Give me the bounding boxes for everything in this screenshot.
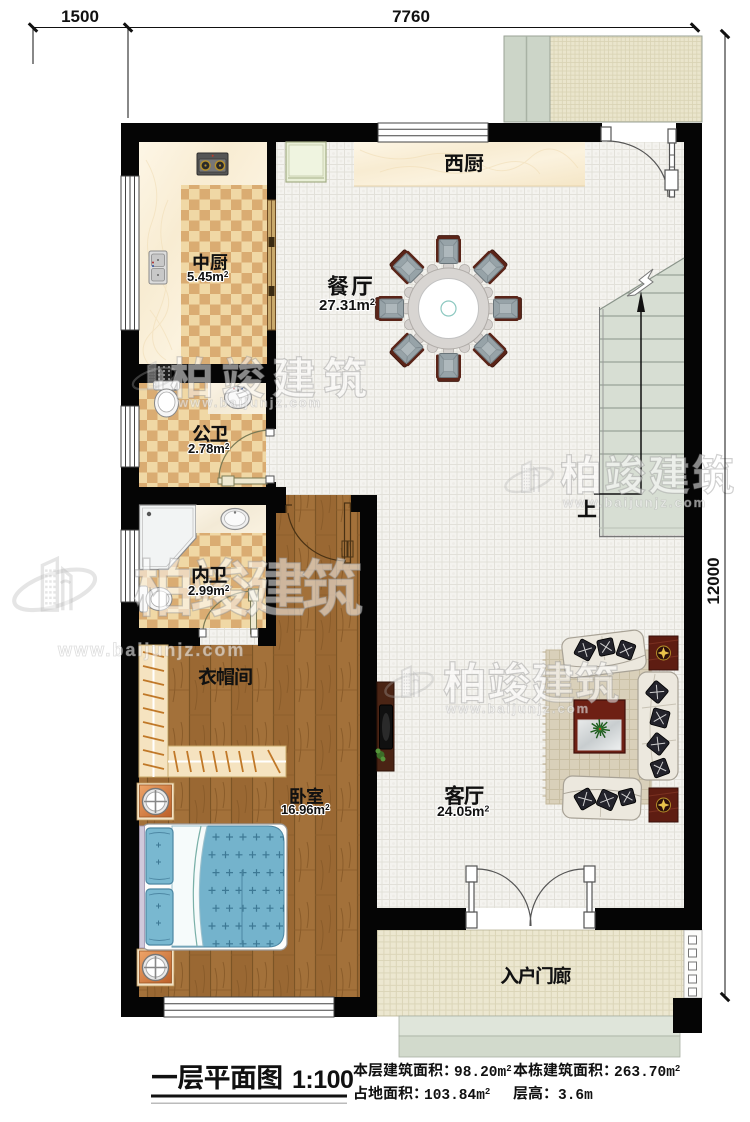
svg-text:3.6m: 3.6m bbox=[558, 1088, 593, 1104]
svg-text:12000: 12000 bbox=[704, 557, 723, 604]
svg-text:263.70m2: 263.70m2 bbox=[614, 1064, 680, 1081]
svg-text:1500: 1500 bbox=[61, 7, 99, 26]
svg-text:98.20m2: 98.20m2 bbox=[454, 1064, 512, 1081]
svg-text:1:100: 1:100 bbox=[292, 1066, 353, 1094]
svg-text:5.45m2: 5.45m2 bbox=[187, 269, 229, 284]
svg-text:24.05m2: 24.05m2 bbox=[437, 803, 489, 819]
svg-text:www.baijunjz.com: www.baijunjz.com bbox=[562, 495, 707, 510]
svg-text:103.84m2: 103.84m2 bbox=[424, 1087, 490, 1104]
svg-text:16.96m2: 16.96m2 bbox=[281, 802, 330, 817]
svg-text:www.baijunjz.com: www.baijunjz.com bbox=[177, 395, 322, 410]
svg-text:www.baijunjz.com: www.baijunjz.com bbox=[445, 701, 590, 716]
svg-text:7760: 7760 bbox=[392, 7, 430, 26]
svg-text:2.99m2: 2.99m2 bbox=[188, 583, 230, 598]
svg-text:www.baijunjz.com: www.baijunjz.com bbox=[57, 640, 245, 660]
svg-text:27.31m2: 27.31m2 bbox=[319, 297, 375, 314]
svg-text:2.78m2: 2.78m2 bbox=[188, 441, 230, 456]
